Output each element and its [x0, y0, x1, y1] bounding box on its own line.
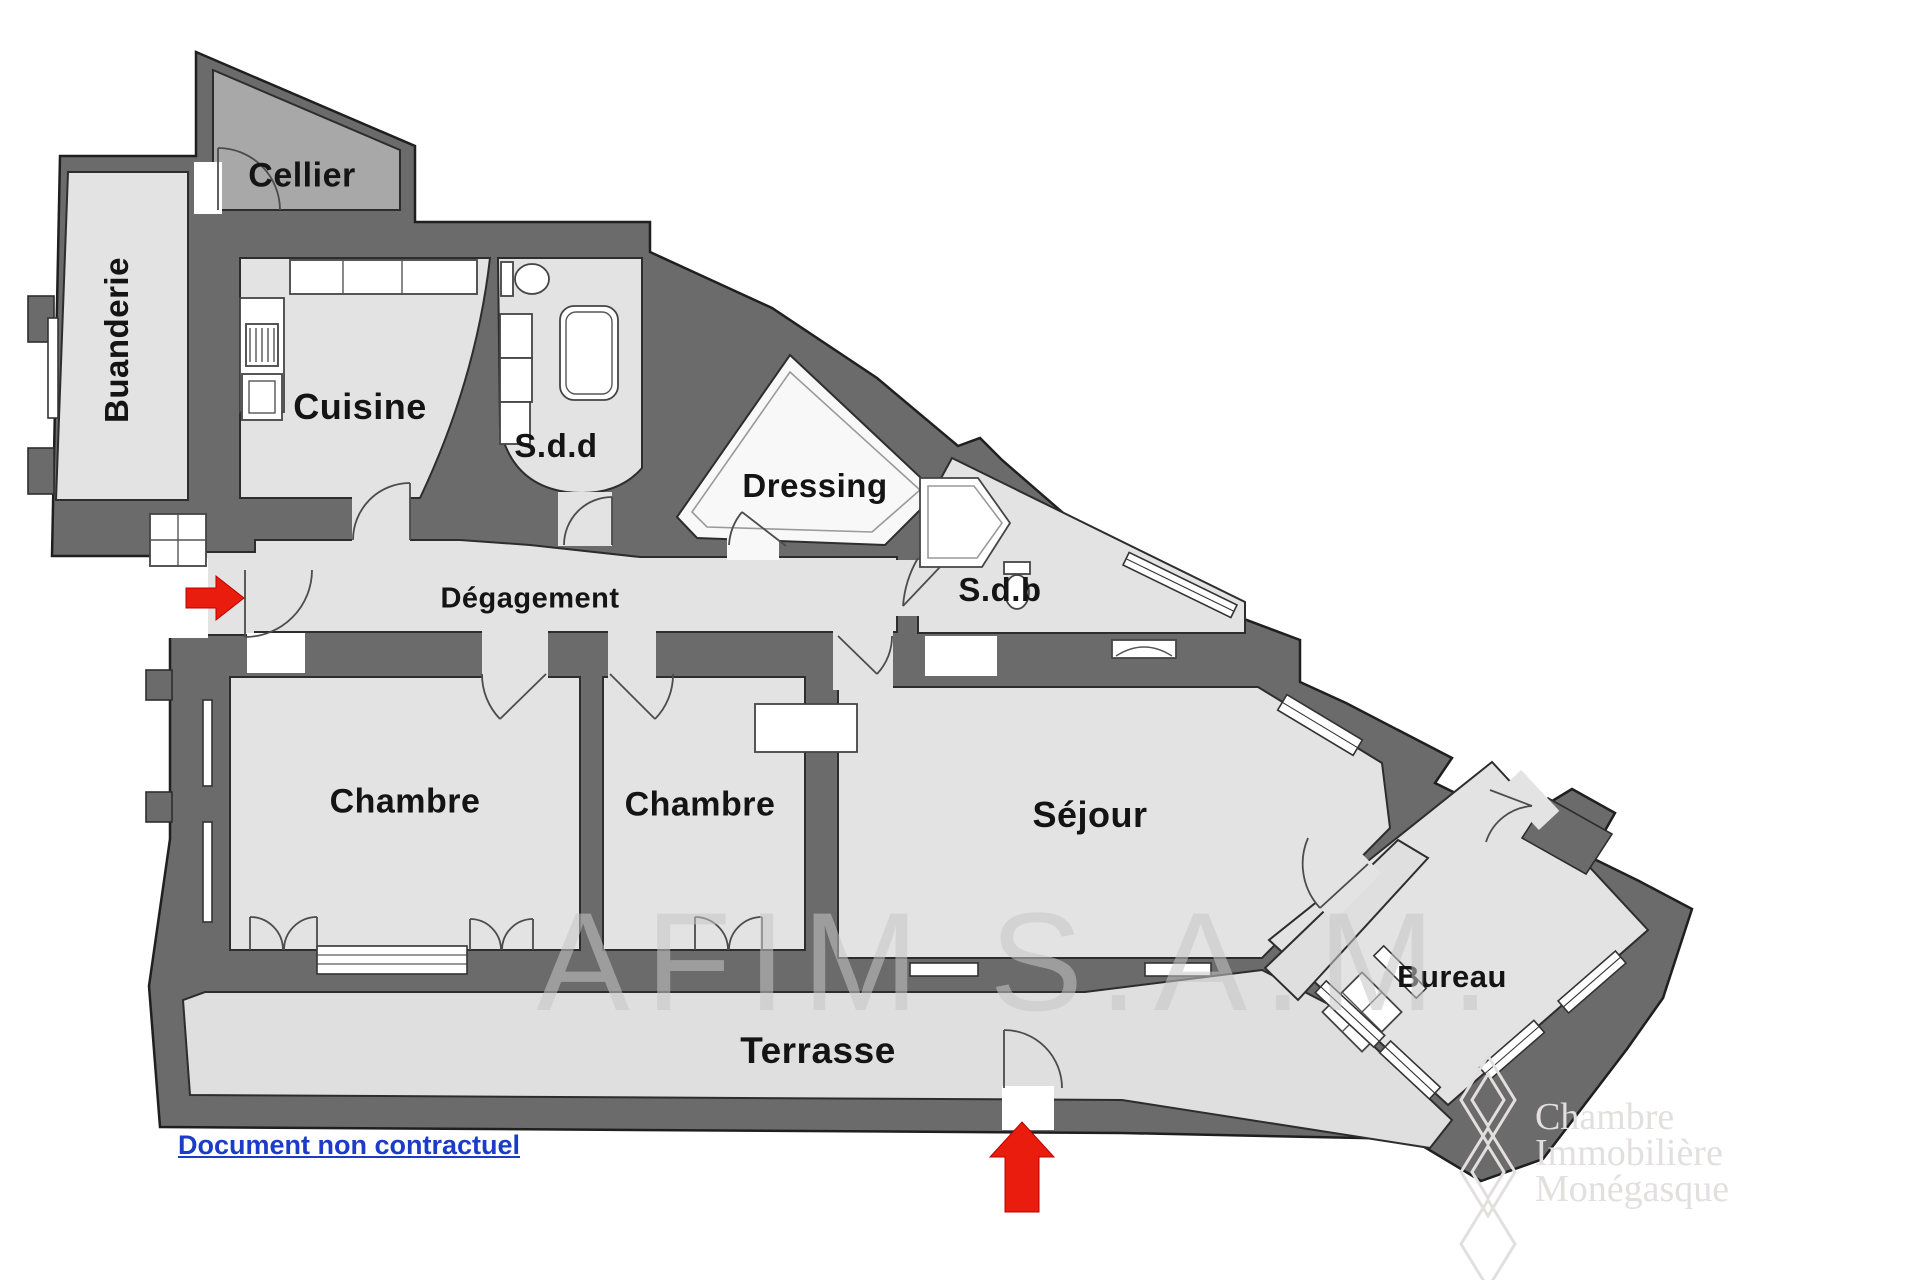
- toilet-bowl-icon: [515, 264, 549, 294]
- room-label-chambre-1: Chambre: [330, 783, 481, 822]
- room-label-sdd: S.d.d: [514, 427, 597, 465]
- floor-plan-page: Cellier Buanderie Cuisine S.d.d Dressing…: [0, 0, 1920, 1280]
- door-gap-chambre2: [608, 630, 656, 680]
- wardrobe-icon: [755, 704, 857, 752]
- kitchen-counter-top: [290, 260, 477, 294]
- logo-text-line2: Immobilière: [1535, 1136, 1723, 1171]
- niche-degagement: [247, 633, 305, 673]
- window: [203, 700, 212, 786]
- room-label-dressing: Dressing: [742, 467, 887, 505]
- niche-sdb: [925, 636, 997, 676]
- room-label-degagement: Dégagement: [440, 583, 619, 616]
- shelf-unit: [500, 314, 532, 358]
- room-label-cellier: Cellier: [248, 157, 355, 196]
- door-gap-sdb: [895, 560, 921, 616]
- door-gap-sdd: [558, 492, 612, 546]
- wall-stub: [146, 792, 172, 822]
- toilet-tank-icon: [501, 262, 513, 296]
- window: [317, 946, 467, 974]
- terrace-arrow-icon: [990, 1122, 1054, 1212]
- window: [203, 822, 212, 922]
- door-gap-cuisine: [352, 494, 410, 544]
- logo-text-line3: Monégasque: [1535, 1172, 1729, 1207]
- window: [48, 318, 58, 418]
- watermark: AFIM S.A.M.: [536, 881, 1505, 1043]
- room-label-cuisine: Cuisine: [293, 386, 427, 428]
- room-label-buanderie: Buanderie: [98, 257, 136, 423]
- shelf-unit: [500, 358, 532, 402]
- room-label-chambre-2: Chambre: [625, 786, 776, 825]
- wall-stub: [146, 670, 172, 700]
- bathtub-icon: [560, 306, 618, 400]
- room-label-sejour: Séjour: [1032, 794, 1147, 836]
- door-gap-chambre1: [482, 630, 548, 680]
- door-gap-terrasse: [1002, 1086, 1054, 1130]
- disclaimer-link[interactable]: Document non contractuel: [178, 1130, 520, 1161]
- room-label-sdb: S.d.b: [958, 571, 1041, 609]
- wall-stub: [28, 448, 54, 494]
- door-gap-dressing: [727, 538, 779, 560]
- radiator-icon: [1112, 640, 1176, 658]
- logo-text-line1: Chambre: [1535, 1100, 1674, 1135]
